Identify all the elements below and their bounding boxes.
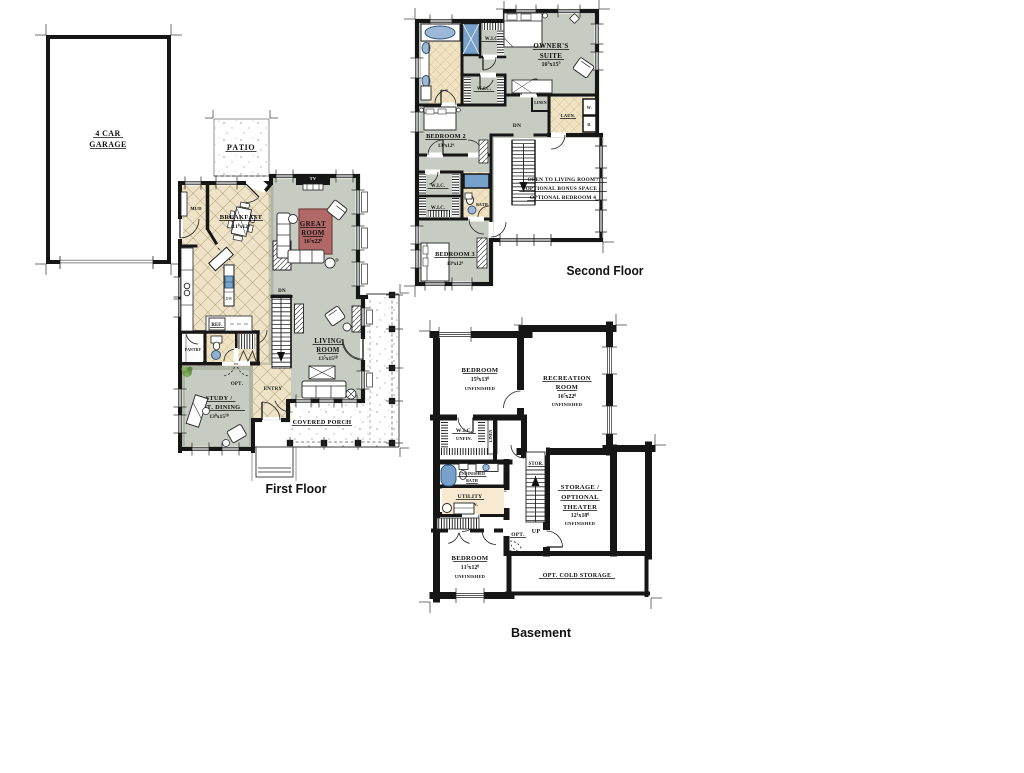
- svg-text:BREAKFAST: BREAKFAST: [220, 214, 263, 221]
- svg-text:LINEN: LINEN: [488, 430, 493, 443]
- svg-text:150x130: 150x130: [471, 376, 489, 383]
- svg-text:TV: TV: [310, 176, 317, 181]
- svg-text:ROOM: ROOM: [556, 384, 579, 391]
- svg-text:PATIO: PATIO: [227, 143, 255, 152]
- svg-text:UNFINISHED: UNFINISHED: [455, 574, 486, 579]
- svg-text:UNFIN.: UNFIN.: [456, 436, 472, 441]
- svg-text:THEATER: THEATER: [563, 504, 597, 511]
- svg-text:BEDROOM: BEDROOM: [452, 555, 489, 562]
- svg-text:121x180: 121x180: [571, 512, 589, 519]
- svg-text:DN: DN: [513, 123, 522, 129]
- svg-text:165x220: 165x220: [304, 238, 322, 245]
- svg-text:UTILITY: UTILITY: [458, 494, 483, 500]
- svg-text:GREAT: GREAT: [300, 221, 326, 228]
- svg-text:165x220: 165x220: [558, 393, 576, 400]
- svg-text:110x124: 110x124: [232, 223, 250, 230]
- svg-text:RECREATION: RECREATION: [543, 375, 591, 382]
- svg-text:OPTIONAL: OPTIONAL: [561, 494, 599, 501]
- svg-text:BEDROOM: BEDROOM: [462, 367, 499, 374]
- svg-text:SUITE: SUITE: [540, 52, 563, 60]
- svg-text:STUDY /: STUDY /: [206, 395, 233, 402]
- svg-text:PANTRY: PANTRY: [185, 348, 202, 352]
- svg-text:OPTIONAL BEDROOM 4: OPTIONAL BEDROOM 4: [530, 195, 596, 201]
- svg-text:W.: W.: [587, 105, 592, 110]
- svg-text:First Floor: First Floor: [266, 481, 327, 496]
- svg-text:MUD: MUD: [190, 206, 202, 211]
- svg-text:130x120: 130x120: [438, 142, 455, 149]
- svg-text:LAUN.: LAUN.: [561, 113, 575, 118]
- svg-text:OPT.: OPT.: [231, 382, 244, 387]
- svg-text:DN: DN: [278, 289, 286, 294]
- svg-text:W.I.C.: W.I.C.: [456, 428, 473, 434]
- svg-text:UNFINISHED: UNFINISHED: [459, 471, 485, 476]
- svg-text:Basement: Basement: [511, 625, 572, 640]
- svg-text:115x120: 115x120: [461, 564, 479, 571]
- svg-text:BEDROOM 2: BEDROOM 2: [426, 133, 466, 140]
- svg-text:OPT. COLD STORAGE: OPT. COLD STORAGE: [543, 573, 612, 579]
- svg-text:GARAGE: GARAGE: [89, 140, 127, 149]
- svg-text:4 CAR: 4 CAR: [95, 129, 120, 138]
- svg-text:130x120: 130x120: [447, 260, 464, 267]
- svg-text:OPT.: OPT.: [511, 532, 525, 538]
- svg-text:ENTRY: ENTRY: [264, 387, 283, 392]
- svg-text:OWNER'S: OWNER'S: [533, 42, 568, 50]
- svg-text:Second Floor: Second Floor: [567, 263, 644, 278]
- svg-text:UP: UP: [532, 529, 541, 535]
- svg-text:BEDROOM 3: BEDROOM 3: [435, 251, 475, 258]
- svg-text:DW: DW: [225, 296, 232, 301]
- svg-text:UNFINISHED: UNFINISHED: [565, 521, 596, 526]
- svg-text:COVERED PORCH: COVERED PORCH: [293, 419, 352, 426]
- svg-text:ROOM: ROOM: [316, 347, 340, 354]
- svg-text:BATH: BATH: [466, 478, 479, 483]
- svg-text:STORAGE /: STORAGE /: [561, 484, 599, 491]
- svg-text:OPEN TO LIVING ROOM /: OPEN TO LIVING ROOM /: [528, 177, 599, 183]
- svg-text:LIVING: LIVING: [314, 338, 342, 345]
- svg-text:D.: D.: [587, 122, 591, 127]
- svg-text:LINEN: LINEN: [534, 101, 547, 105]
- svg-text:UNFINISHED: UNFINISHED: [552, 402, 583, 407]
- svg-text:ROOM: ROOM: [301, 230, 325, 237]
- svg-text:OPTIONAL BONUS SPACE /: OPTIONAL BONUS SPACE /: [526, 186, 601, 192]
- svg-text:165x155: 165x155: [541, 60, 560, 68]
- svg-text:UNFINISHED: UNFINISHED: [465, 386, 496, 391]
